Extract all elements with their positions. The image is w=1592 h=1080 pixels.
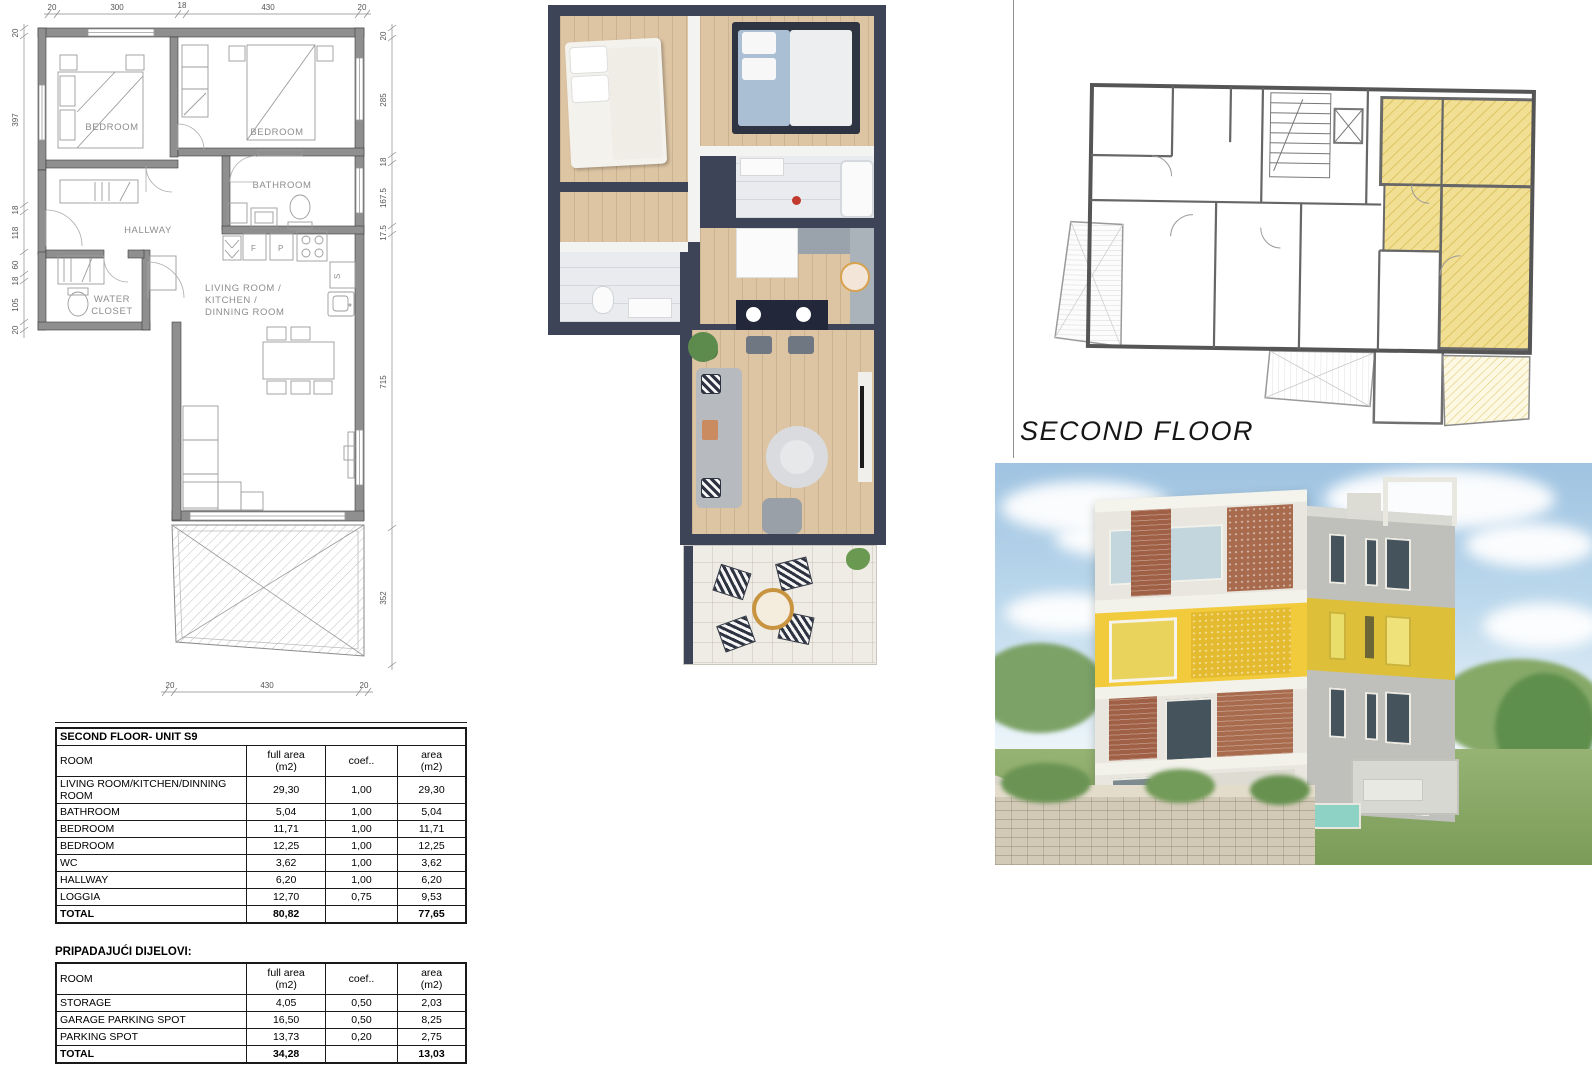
label-bathroom: BATHROOM	[253, 180, 312, 191]
stairs	[1270, 93, 1363, 178]
render-stool	[788, 336, 814, 354]
svg-text:20: 20	[358, 3, 367, 12]
svg-text:60: 60	[11, 260, 20, 269]
hedge	[1145, 769, 1215, 803]
svg-text:300: 300	[110, 3, 124, 12]
label-bedroom-right: BEDROOM	[250, 127, 303, 138]
yellow-band-right	[1307, 598, 1455, 680]
table-row: LIVING ROOM/KITCHEN/DINNING ROOM29,301,0…	[56, 777, 466, 804]
col-header-coef: coef..	[325, 963, 397, 995]
render-wc-sink	[628, 298, 672, 318]
col-header-room: ROOM	[56, 963, 247, 995]
floor-overview-plan	[1013, 0, 1592, 460]
technical-floor-plan: BEDROOM BEDROOM BATHROOM HALLWAY WATER C…	[0, 0, 470, 710]
pergola	[1351, 759, 1459, 815]
svg-text:285: 285	[379, 93, 388, 107]
svg-text:20: 20	[166, 681, 175, 690]
overview-caption: SECOND FLOOR	[1020, 416, 1254, 447]
hedge	[1001, 763, 1091, 803]
windows	[39, 29, 363, 520]
svg-text:352: 352	[379, 591, 388, 605]
svg-text:397: 397	[11, 113, 20, 127]
label-living-2: KITCHEN /	[205, 295, 257, 306]
render-kitchen-island	[736, 300, 828, 330]
stone-wall	[995, 793, 1315, 865]
area-tables: SECOND FLOOR- UNIT S9 ROOM full area(m2)…	[55, 722, 467, 1080]
furniture	[58, 45, 356, 510]
hedge	[1250, 775, 1310, 805]
label-kitchen-p: P	[278, 244, 284, 253]
svg-text:105: 105	[11, 298, 20, 312]
building-render	[995, 463, 1592, 865]
svg-text:20: 20	[360, 681, 369, 690]
svg-text:20: 20	[11, 28, 20, 37]
table-row: GARAGE PARKING SPOT16,500,508,25	[56, 1012, 466, 1029]
svg-text:20: 20	[379, 31, 388, 40]
render-vanity	[740, 158, 784, 176]
table-row: WC3,621,003,62	[56, 855, 466, 872]
label-wc-1: WATER	[94, 294, 130, 305]
table-row: LOGGIA12,700,759,53	[56, 889, 466, 906]
table-total-row: TOTAL34,2813,03	[56, 1046, 466, 1064]
render-rug	[766, 426, 828, 488]
render-plant	[688, 332, 718, 362]
table-row: PARKING SPOT13,730,202,75	[56, 1029, 466, 1046]
table-row: BEDROOM12,251,0012,25	[56, 838, 466, 855]
roof-structure	[1383, 477, 1457, 526]
label-bedroom-left: BEDROOM	[85, 122, 138, 133]
label-living-1: LIVING ROOM /	[205, 283, 281, 294]
annex-area-table: ROOM full area(m2) coef.. area(m2) STORA…	[55, 962, 467, 1064]
building-left-face	[1095, 489, 1307, 818]
render-fruit-bowl	[840, 262, 870, 292]
render-stool	[746, 336, 772, 354]
table-top-rule	[55, 722, 467, 723]
table-row: BATHROOM5,041,005,04	[56, 804, 466, 821]
render-bathtub	[840, 160, 874, 218]
col-header-coef: coef..	[325, 746, 397, 777]
render-terrace-table	[752, 588, 794, 630]
render-tv-unit	[858, 372, 872, 482]
svg-text:20: 20	[11, 325, 20, 334]
svg-text:18: 18	[178, 1, 187, 10]
svg-text:18: 18	[11, 276, 20, 285]
svg-text:18: 18	[379, 157, 388, 166]
svg-text:715: 715	[379, 375, 388, 389]
label-wc-2: CLOSET	[91, 306, 133, 317]
col-header-full-area: full area(m2)	[247, 963, 325, 995]
svg-text:430: 430	[261, 3, 275, 12]
col-header-area: area(m2)	[398, 746, 466, 777]
label-hallway: HALLWAY	[124, 225, 172, 236]
svg-text:118: 118	[11, 226, 20, 239]
loggia	[172, 525, 364, 656]
annex-table-title: PRIPADAJUĆI DIJELOVI:	[55, 946, 467, 958]
svg-text:18: 18	[11, 205, 20, 214]
table-row: BEDROOM11,711,0011,71	[56, 821, 466, 838]
label-living-3: DINNING ROOM	[205, 307, 285, 318]
render-sofa	[696, 368, 742, 508]
label-kitchen-f: F	[251, 244, 257, 253]
roof-box	[1347, 493, 1381, 519]
render-toilet	[592, 286, 614, 314]
render-red-accent	[792, 196, 801, 205]
label-kitchen-s: S	[333, 273, 342, 279]
col-header-area: area(m2)	[398, 963, 466, 995]
yellow-band-left	[1095, 602, 1307, 687]
table-row: HALLWAY6,201,006,20	[56, 872, 466, 889]
render-armchair	[762, 498, 802, 534]
svg-text:20: 20	[48, 3, 57, 12]
brochure-page: BEDROOM BEDROOM BATHROOM HALLWAY WATER C…	[0, 0, 1592, 1080]
render-hall-cabinet	[736, 228, 798, 278]
render-hallway	[560, 192, 688, 242]
render-floor-plan	[540, 0, 892, 668]
svg-text:167.5: 167.5	[379, 187, 388, 208]
unit-area-table: SECOND FLOOR- UNIT S9 ROOM full area(m2)…	[55, 727, 467, 924]
table-total-row: TOTAL80,8277,65	[56, 906, 466, 924]
svg-text:430: 430	[260, 681, 274, 690]
render-bed-left	[565, 38, 667, 169]
table-row: STORAGE4,050,502,03	[56, 995, 466, 1012]
unit-table-title: SECOND FLOOR- UNIT S9	[56, 728, 466, 746]
svg-text:17.5: 17.5	[379, 225, 388, 241]
col-header-room: ROOM	[56, 746, 247, 777]
col-header-full-area: full area(m2)	[247, 746, 325, 777]
render-bed-right	[732, 22, 860, 134]
